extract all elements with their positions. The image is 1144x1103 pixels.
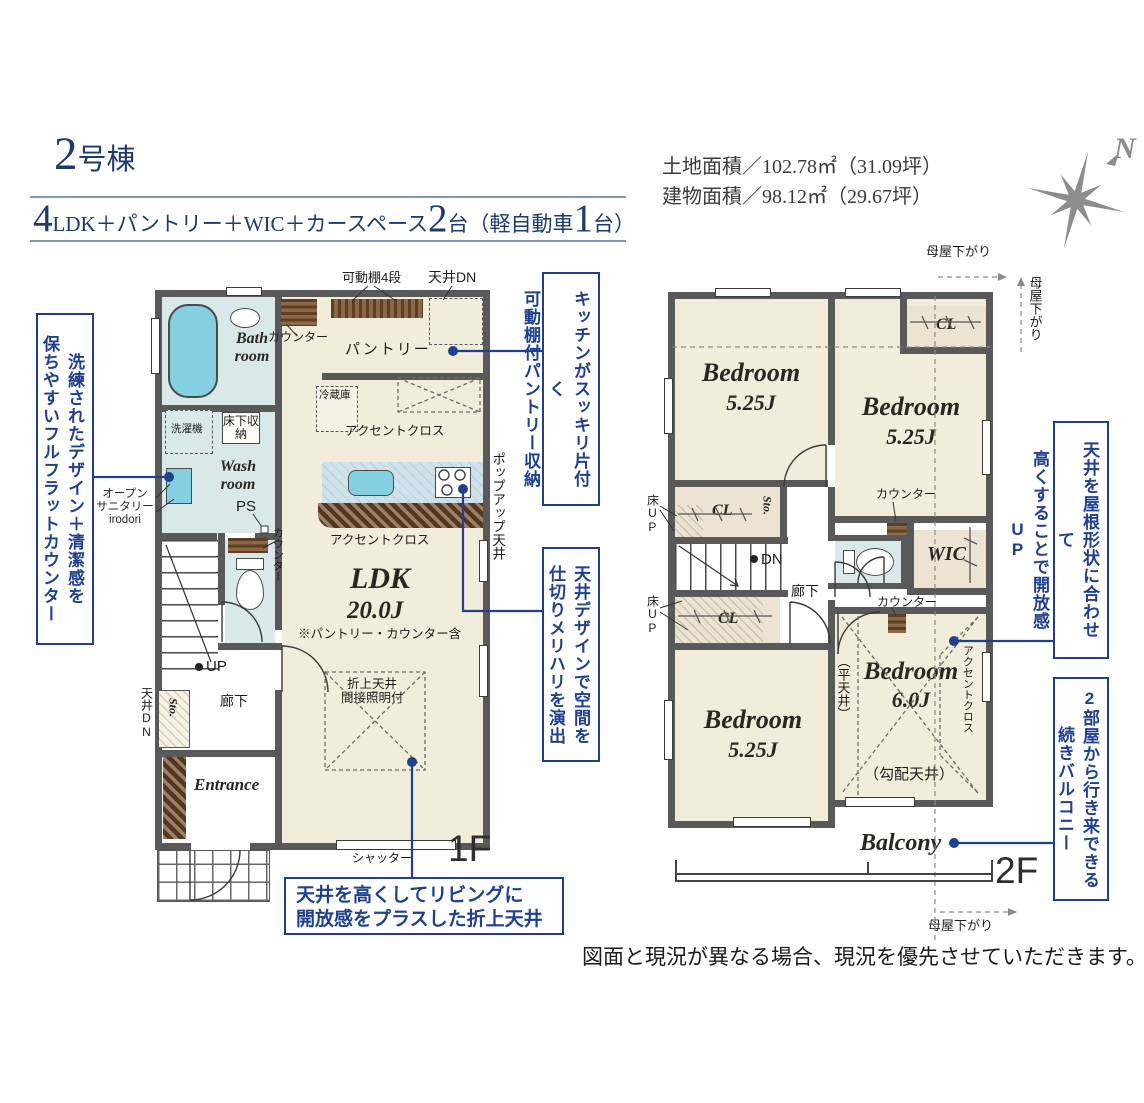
f1-ceiling-dn-area bbox=[429, 298, 483, 345]
window bbox=[715, 288, 771, 297]
toilet-2f bbox=[856, 548, 894, 576]
callout-ceiling-zone: 天井デザインで空間を 仕切りメリハリを演出 bbox=[542, 547, 600, 762]
callout-pantry-line2: 可動棚付パントリー収納 bbox=[518, 284, 543, 494]
f2-wall bbox=[907, 523, 914, 588]
f2-wall bbox=[828, 487, 835, 537]
spec-text-3: （軽自動車 bbox=[468, 212, 573, 236]
accent-cloth-top-label: アクセントクロス bbox=[345, 424, 444, 438]
bedroom-bl-label: Bedroom5.25J bbox=[697, 705, 809, 763]
wic-label: WIC bbox=[927, 543, 966, 565]
bedroom-bl-size: 5.25J bbox=[728, 737, 778, 762]
ldk-note-label: ※パントリー・カウンター含 bbox=[298, 627, 461, 641]
bedroom-tr-size: 5.25J bbox=[886, 424, 936, 449]
floor-up-label-1: 床UP bbox=[645, 494, 658, 542]
bathroom-label: Bath room bbox=[226, 330, 278, 366]
f2-wall bbox=[986, 292, 993, 807]
f2-wall bbox=[907, 588, 993, 595]
f1-shelf-counter-a bbox=[281, 299, 317, 326]
callout-counter-line1: 洗練されたデザイン＋清潔感を bbox=[62, 325, 87, 633]
shutter-window bbox=[336, 840, 456, 850]
moya-right-label: 母屋下がり bbox=[1027, 276, 1042, 371]
counter-left-label: カウンター bbox=[271, 527, 283, 583]
floor-2f-label: 2F bbox=[995, 850, 1038, 891]
floor-1f-label: 1F bbox=[448, 828, 491, 869]
window bbox=[845, 797, 915, 807]
flat-ceiling-label: （平天井） bbox=[835, 655, 850, 741]
building-area: 建物面積／98.12㎡（29.67坪） bbox=[662, 186, 932, 208]
window bbox=[733, 817, 811, 827]
callout-balcony: 2部屋から行き来できる 続きバルコニー bbox=[1053, 677, 1109, 901]
spec-text-2: 台 bbox=[447, 212, 468, 236]
callout-balcony-line2: 続きバルコニー bbox=[1052, 689, 1077, 889]
window bbox=[664, 700, 673, 760]
callout-balcony-line1: 2部屋から行き来できる bbox=[1077, 689, 1102, 889]
storage-sto-label: Sto. bbox=[166, 698, 179, 717]
f2-wall bbox=[835, 516, 993, 523]
underfloor-storage-wash: 床下収納 bbox=[222, 412, 260, 444]
ceiling-dn-left-label: 天井DN bbox=[139, 687, 152, 753]
storage-sto-2f-label: Sto. bbox=[760, 496, 773, 515]
bedroom-tl-label: Bedroom5.25J bbox=[695, 358, 807, 416]
entrance-label: Entrance bbox=[194, 775, 259, 794]
spec-num-2: 2 bbox=[428, 197, 448, 240]
coffered-light-label: 間接照明付 bbox=[341, 691, 404, 705]
accent-cloth-2f-label: アクセントクロス bbox=[961, 645, 973, 755]
fridge-label: 冷蔵庫 bbox=[319, 390, 351, 402]
f2-counter-b bbox=[888, 614, 906, 633]
balcony-railing bbox=[675, 860, 993, 881]
callout-coffered: 天井を高くしてリビングに 開放感をプラスした折上天井 bbox=[284, 877, 564, 935]
pantry-label: パントリー bbox=[345, 342, 431, 359]
movable-shelf-label: 可動棚4段 bbox=[342, 271, 401, 286]
callout-counter: 洗練されたデザイン＋清潔感を 保ちやすいフルフラットカウンター bbox=[36, 313, 94, 645]
callout-pantry: キッチンがスッキリ片付く 可動棚付パントリー収納 bbox=[542, 272, 600, 506]
spec-num-4: 4 bbox=[33, 197, 53, 240]
disclaimer: 図面と現況が異なる場合、現況を優先させていただきます。 bbox=[582, 946, 1144, 970]
floor-up-label-2: 床UP bbox=[645, 595, 658, 643]
window bbox=[226, 287, 262, 296]
balcony-label: Balcony bbox=[860, 830, 941, 857]
entrance-porch bbox=[157, 850, 270, 902]
callout-roof: 天井を屋根形状に合わせて 高くすることで開放感UP bbox=[1053, 421, 1109, 659]
f2-wall bbox=[828, 583, 907, 589]
f2-wall bbox=[780, 487, 787, 544]
accent-cloth-bottom-label: アクセントクロス bbox=[330, 533, 429, 547]
f1-wall bbox=[155, 533, 217, 540]
toilet-2f-tank bbox=[843, 550, 855, 574]
f1-wall bbox=[275, 690, 282, 843]
f2-wall bbox=[668, 537, 788, 544]
spec-num-1: 1 bbox=[573, 197, 593, 240]
bedroom-br-name: Bedroom bbox=[864, 658, 958, 685]
title-divider-bottom bbox=[30, 240, 626, 242]
window bbox=[982, 652, 991, 702]
open-sanitary-label: オープン サニタリー irodori bbox=[92, 488, 158, 527]
f2-wall bbox=[828, 299, 835, 445]
f2-wall bbox=[828, 643, 835, 828]
stove bbox=[435, 467, 471, 498]
coffered-ceiling-label: 折上天井 bbox=[347, 677, 397, 691]
callout-coffered-line1: 天井を高くしてリビングに bbox=[296, 884, 552, 908]
f1-wall bbox=[218, 533, 225, 605]
slope-ceiling-label: （勾配天井） bbox=[864, 767, 954, 784]
spec-text-4: 台） bbox=[593, 212, 635, 236]
f1-wall bbox=[155, 843, 191, 850]
kitchen-sink bbox=[348, 470, 394, 496]
f2-wall bbox=[668, 590, 788, 597]
f1-shelf-counter-b bbox=[331, 299, 423, 318]
building-number: 2 bbox=[54, 128, 78, 180]
bedroom-br-size: 6.0J bbox=[892, 687, 931, 712]
f1-wall bbox=[155, 290, 162, 850]
toilet-1f bbox=[236, 570, 264, 610]
window bbox=[479, 645, 488, 697]
f1-wall bbox=[218, 643, 282, 650]
toilet-1f-tank bbox=[236, 558, 264, 570]
bath-basin bbox=[230, 308, 260, 328]
f2-wall bbox=[900, 299, 907, 354]
entrance-shoe-cabinet bbox=[163, 757, 186, 839]
moya-bottom-label: 母屋下がり bbox=[928, 919, 993, 934]
f2-wall bbox=[900, 347, 993, 354]
hall-1f-label: 廊下 bbox=[220, 694, 248, 710]
window bbox=[479, 540, 488, 582]
f2-floor-up-a bbox=[675, 505, 703, 537]
callout-roof-line1: 天井を屋根形状に合わせて bbox=[1052, 433, 1102, 647]
dn-label: DN bbox=[761, 552, 783, 569]
hall-2f-label: 廊下 bbox=[791, 584, 819, 600]
window bbox=[845, 288, 901, 297]
toilet-counter bbox=[228, 538, 268, 553]
page-title: 2号棟 bbox=[54, 128, 136, 181]
f2-wall bbox=[828, 535, 907, 541]
counter-2f-label-1: カウンター bbox=[876, 488, 936, 501]
building-suffix: 号棟 bbox=[78, 144, 136, 176]
ldk-size-label: 20.0J bbox=[347, 597, 403, 625]
callout-counter-line2: 保ちやすいフルフラットカウンター bbox=[37, 325, 62, 633]
moya-top-label: 母屋下がり bbox=[926, 245, 991, 260]
bathtub bbox=[168, 304, 218, 398]
callout-coffered-line2: 開放感をプラスした折上天井 bbox=[296, 908, 552, 932]
bedroom-tl-size: 5.25J bbox=[726, 390, 776, 415]
ps-label: PS bbox=[236, 499, 256, 516]
bedroom-tr-name: Bedroom bbox=[862, 392, 960, 421]
kitchen-counter-front bbox=[318, 503, 483, 528]
bedroom-tr-label: Bedroom5.25J bbox=[855, 392, 967, 450]
wash-sink bbox=[166, 468, 192, 504]
spec-text-1: LDK＋パントリー＋WIC＋カースペース bbox=[53, 212, 428, 236]
up-label: UP bbox=[206, 659, 227, 676]
popup-ceiling-label: ポップアップ天井 bbox=[490, 452, 505, 612]
shutter-label: シャッター bbox=[352, 852, 412, 865]
window bbox=[151, 318, 160, 374]
callout-pantry-line1: キッチンがスッキリ片付く bbox=[543, 284, 593, 494]
ceiling-dn-top-label: 天井DN bbox=[428, 270, 476, 286]
f2-wall bbox=[668, 480, 828, 487]
bedroom-tl-name: Bedroom bbox=[702, 358, 800, 387]
underfloor-storage-wash-label: 床下収納 bbox=[223, 415, 259, 441]
counter-2f-label-2: カウンター bbox=[877, 596, 937, 609]
washer-label: 洗濯機 bbox=[171, 424, 203, 436]
callout-roof-line2: 高くすることで開放感UP bbox=[1007, 433, 1052, 647]
washroom-label: Wash room bbox=[208, 458, 268, 494]
ldk-label: LDK bbox=[350, 562, 410, 596]
window bbox=[982, 420, 991, 475]
callout-ceiling-zone-line1: 天井デザインで空間を bbox=[568, 559, 593, 750]
floorplan-flyer: { "colors":{"accent_blue":"#20408f","tit… bbox=[0, 0, 1144, 1103]
closet-tr-label: CL bbox=[936, 316, 956, 334]
spec-line: 4LDK＋パントリー＋WIC＋カースペース2台（軽自動車1台） bbox=[33, 197, 635, 241]
f1-wall bbox=[155, 290, 490, 297]
window bbox=[664, 378, 673, 434]
callout-ceiling-zone-line2: 仕切りメリハリを演出 bbox=[543, 559, 568, 750]
bedroom-bl-name: Bedroom bbox=[704, 705, 802, 734]
closet-a-label: CL bbox=[712, 502, 732, 520]
f1-wall bbox=[155, 750, 282, 757]
compass-rose: N bbox=[1022, 130, 1140, 254]
closet-b-label: CL bbox=[718, 610, 738, 628]
land-area: 土地面積／102.78㎡（31.09坪） bbox=[662, 156, 942, 178]
f2-wall bbox=[668, 643, 835, 650]
bedroom-br-label: Bedroom6.0J bbox=[855, 658, 967, 714]
f1-wall bbox=[322, 373, 490, 380]
